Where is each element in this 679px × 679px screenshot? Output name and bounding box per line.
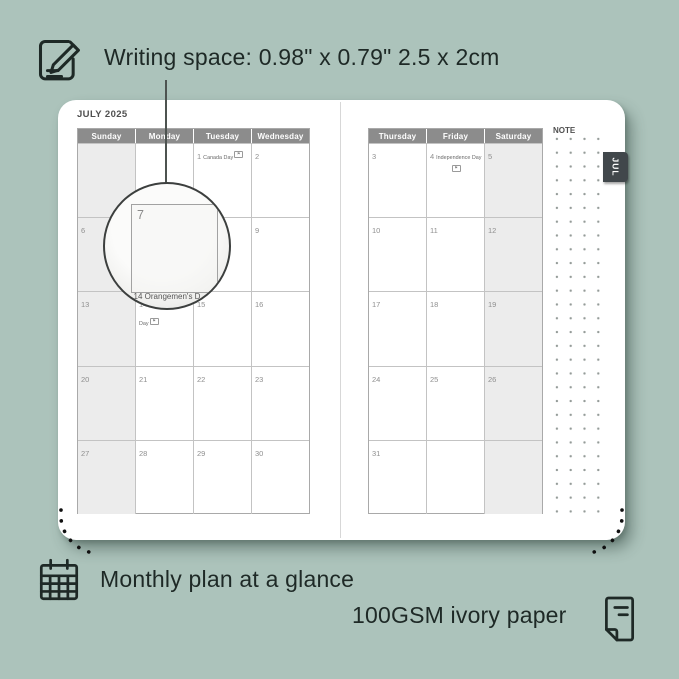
magnifier-lens: 7 8 14 Orangemen's D <box>103 182 231 310</box>
calendar-cell: 16 <box>252 291 309 365</box>
calendar-cell: 31 <box>369 440 427 514</box>
month-title: JULY 2025 <box>77 109 128 120</box>
date-number: 5 <box>488 152 492 161</box>
calendar-cell: 11 <box>427 217 485 291</box>
date-number: 30 <box>255 449 263 458</box>
date-number: 21 <box>139 375 147 384</box>
calendar-week-row: 34Independence Day⚑5 <box>369 143 542 217</box>
day-header-row: SundayMondayTuesdayWednesday <box>78 129 309 143</box>
month-tab-label: JUL <box>611 157 621 176</box>
date-number: 25 <box>430 375 438 384</box>
monthly-plan-label: Monthly plan at a glance <box>100 566 354 593</box>
day-header: Thursday <box>369 129 426 143</box>
date-number: 9 <box>255 226 259 235</box>
calendar-cell: 21 <box>136 366 194 440</box>
date-number: 10 <box>372 226 380 235</box>
paper-sheet-icon <box>598 592 640 646</box>
date-number: 1 <box>197 152 201 161</box>
calendar-cell <box>427 440 485 514</box>
date-number: 20 <box>81 375 89 384</box>
date-number: 11 <box>430 226 438 235</box>
calendar-cell: 2 <box>252 143 309 217</box>
day-header: Tuesday <box>194 129 251 143</box>
calendar-cell: 29 <box>194 440 252 514</box>
calendar-cell: 12 <box>485 217 542 291</box>
date-number: 17 <box>372 300 380 309</box>
calendar-week-row: 171819 <box>369 291 542 365</box>
calendar-cell: 25 <box>427 366 485 440</box>
calendar-cell: 30 <box>252 440 309 514</box>
date-number: 24 <box>372 375 380 384</box>
lens-date-8: 8 <box>221 208 228 222</box>
calendar-cell: 26 <box>485 366 542 440</box>
calendar-cell: 3 <box>369 143 427 217</box>
holiday-label: Canada Day <box>203 155 233 161</box>
lens-writing-cell <box>131 204 218 293</box>
date-number: 26 <box>488 375 496 384</box>
flag-icon: ⚑ <box>452 165 461 172</box>
page-spine <box>340 102 341 538</box>
date-number: 13 <box>81 300 89 309</box>
calendar-week-row: 31 <box>369 440 542 514</box>
calendar-cell: 10 <box>369 217 427 291</box>
calendar-cell: 19 <box>485 291 542 365</box>
date-number: 4 <box>430 152 434 161</box>
calendar-cell: 9 <box>252 217 309 291</box>
day-header: Friday <box>427 129 484 143</box>
planner-spread: JULY 2025 SundayMondayTuesdayWednesday1C… <box>58 100 625 540</box>
lens-partial-text: 14 Orangemen's D <box>105 292 229 301</box>
calendar-cell: 4Independence Day⚑ <box>427 143 485 217</box>
date-number: 12 <box>488 226 496 235</box>
lens-date-7: 7 <box>137 208 144 222</box>
day-header: Wednesday <box>252 129 309 143</box>
note-label: NOTE <box>550 125 578 136</box>
calendar-cell: 13 <box>78 291 136 365</box>
day-header: Saturday <box>485 129 542 143</box>
calendar-cell: 20 <box>78 366 136 440</box>
date-number: 6 <box>81 226 85 235</box>
paper-label: 100GSM ivory paper <box>352 602 567 629</box>
date-number: 27 <box>81 449 89 458</box>
calendar-cell: 27 <box>78 440 136 514</box>
flag-icon: ⚑ <box>150 318 159 325</box>
calendar-cell: 23 <box>252 366 309 440</box>
calendar-cell: 5 <box>485 143 542 217</box>
calendar-grid-icon <box>34 556 84 606</box>
date-number: 2 <box>255 152 259 161</box>
date-number: 22 <box>197 375 205 384</box>
calendar-week-row: 20212223 <box>78 366 309 440</box>
flag-icon: ⚑ <box>234 151 243 158</box>
calendar-cell: 28 <box>136 440 194 514</box>
calendar-week-row: 101112 <box>369 217 542 291</box>
date-number: 19 <box>488 300 496 309</box>
date-number: 3 <box>372 152 376 161</box>
calendar-grid-left: SundayMondayTuesdayWednesday1Canada Day⚑… <box>77 128 310 514</box>
calendar-grid-right: ThursdayFridaySaturday34Independence Day… <box>368 128 543 514</box>
holiday-label: Independence Day <box>436 155 481 161</box>
date-number: 16 <box>255 300 263 309</box>
date-number: 28 <box>139 449 147 458</box>
calendar-cell: 15 <box>194 291 252 365</box>
pencil-note-icon <box>30 31 86 87</box>
calendar-week-row: 27282930 <box>78 440 309 514</box>
date-number: 29 <box>197 449 205 458</box>
calendar-cell <box>485 440 542 514</box>
date-number: 31 <box>372 449 380 458</box>
writing-space-label: Writing space: 0.98" x 0.79" 2.5 x 2cm <box>104 44 500 71</box>
calendar-week-row: 242526 <box>369 366 542 440</box>
note-dot-grid <box>546 130 610 518</box>
day-header-row: ThursdayFridaySaturday <box>369 129 542 143</box>
date-number: 18 <box>430 300 438 309</box>
pointer-line <box>165 80 167 184</box>
calendar-cell: 17 <box>369 291 427 365</box>
calendar-cell: 24 <box>369 366 427 440</box>
calendar-cell: 18 <box>427 291 485 365</box>
calendar-cell: 22 <box>194 366 252 440</box>
date-number: 23 <box>255 375 263 384</box>
month-tab: JUL <box>603 152 628 182</box>
day-header: Sunday <box>78 129 135 143</box>
